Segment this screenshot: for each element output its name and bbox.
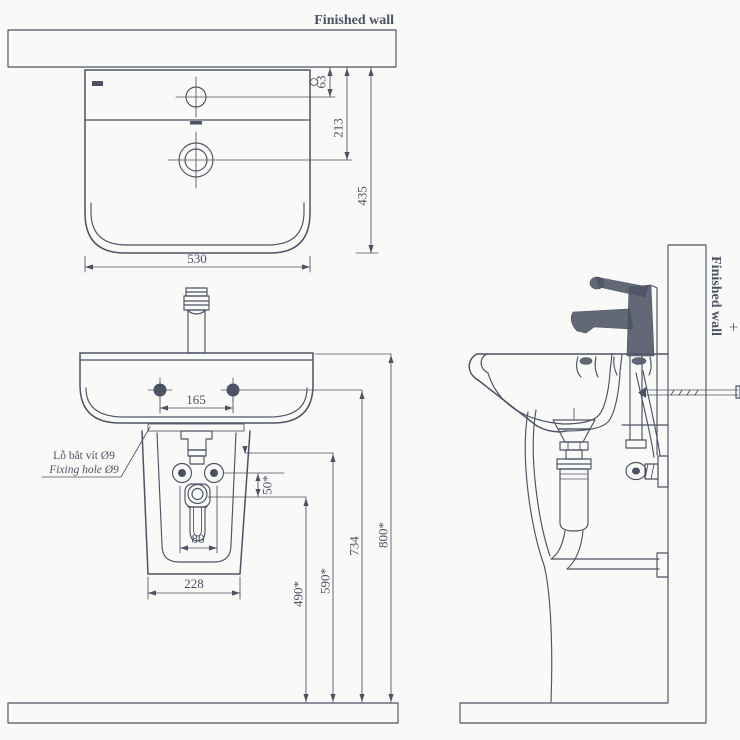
fixing-hole-label-en: Fixing hole Ø9: [48, 464, 119, 476]
dim-label-165: 165: [186, 392, 206, 407]
dim-label-63: 63: [314, 76, 329, 89]
sink-pedestal-joint-hatch: [148, 424, 244, 431]
front-view-dimensions: 165 80 228 50* 490*: [148, 354, 394, 702]
fixing-hole-callout: Lỗ bắt vít Ø9 Fixing hole Ø9: [42, 427, 150, 477]
front-view: 165 80 228 50* 490*: [8, 288, 398, 723]
wall-pipe-flange: [657, 553, 668, 577]
dim-label-590: 590*: [318, 568, 333, 594]
finished-wall-label-top: Finished wall: [314, 13, 394, 28]
center-notch: [190, 121, 202, 125]
side-view: Finished wall: [460, 245, 740, 723]
sink-front-outline: [80, 353, 313, 423]
top-view: Finished wall 63: [8, 13, 396, 272]
finished-wall-label-side: Finished wall: [708, 256, 723, 336]
dim-label-50: 50*: [260, 475, 275, 495]
drain-trap-side: [551, 420, 668, 577]
wall-section-top: [8, 30, 396, 67]
fixing-hole-label-vi: Lỗ bắt vít Ø9: [53, 449, 115, 462]
pedestal-front: [142, 431, 250, 574]
dim-label-435: 435: [355, 186, 370, 206]
dim-label-734: 734: [347, 536, 362, 556]
faucet-hole-top: [176, 77, 335, 117]
dim-label-800: 800*: [376, 522, 391, 548]
dim-label-490: 490*: [291, 581, 306, 607]
floor-section-left: [8, 703, 398, 723]
top-view-dimensions: 63 213 435 530: [85, 67, 378, 272]
washbasin-installation-drawing: Finished wall 63: [0, 0, 740, 740]
angle-valve-side: [626, 456, 668, 487]
faucet-front: [184, 288, 209, 353]
dim-label-228: 228: [184, 576, 204, 591]
dim-label-530: 530: [187, 251, 207, 266]
overflow-marker: [92, 81, 103, 86]
dim-label-213: 213: [331, 118, 346, 138]
technical-drawing-page: Finished wall 63: [0, 0, 740, 740]
dim-label-80: 80: [192, 531, 205, 546]
drain-hole-top: [168, 132, 352, 188]
sink-top-outline: [85, 70, 318, 253]
pedestal-leg-side: [525, 410, 551, 702]
